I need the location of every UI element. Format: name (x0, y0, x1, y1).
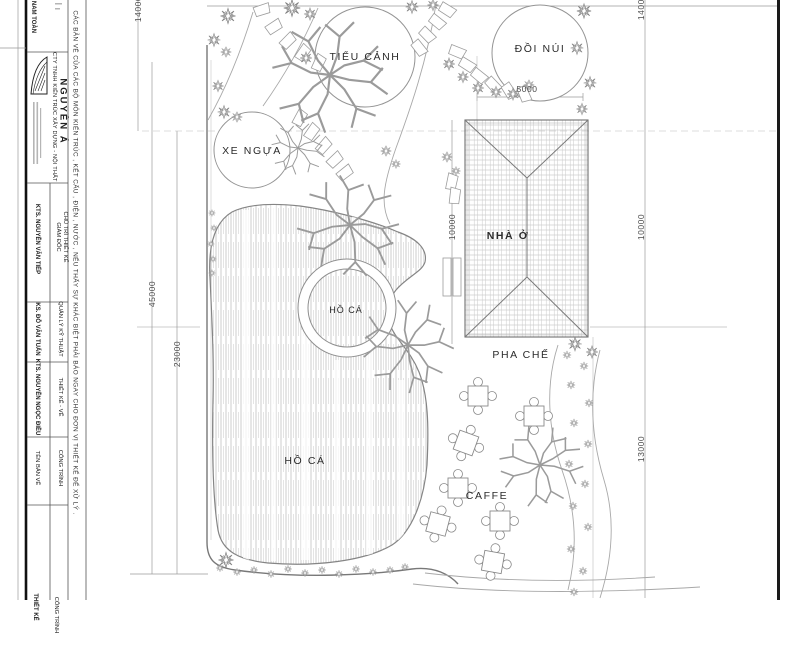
dim-14000-right: 14000 (636, 0, 646, 37)
company-name: CTY TNHH KIẾN TRÚC XÂY DỰNG - NỘI THẤT (51, 52, 57, 174)
role-chu-tri: CHỦ TRÌ THIẾT KẾ (62, 190, 68, 284)
sheet-border-right (777, 0, 780, 600)
dim-14000-left: 14000 (133, 0, 143, 39)
revision-note: CÁC BẢN VẼ CỦA CÁC BỘ MÔN KIẾN TRÚC , KẾ… (72, 3, 79, 523)
dim-10000-left: 10000 (447, 197, 457, 257)
field-ten-ban-ve: TÊN BẢN VẼ (34, 433, 40, 503)
area-label-doi-nui: ĐỒI NÚI (515, 43, 566, 55)
drawing-name-value: THIẾT KẾ (32, 567, 38, 647)
house-roof (465, 120, 588, 337)
dim-10000-right: 10000 (636, 197, 646, 257)
company-brand: NGUYÊN Á (58, 66, 69, 158)
project-value: CÔNG TRÌNH (53, 570, 59, 660)
dim-13000: 13000 (636, 419, 646, 479)
role-thiet-ke-ve: THIẾT KẾ - VẼ (57, 357, 63, 437)
area-label-xe-ngua: XE NGỰA (222, 145, 282, 157)
field-cong-trinh: CÔNG TRÌNH (57, 433, 63, 503)
area-label-nha-o: NHÀ Ở (487, 230, 530, 242)
site-plan-canvas (0, 0, 800, 600)
cafe-tables (415, 378, 552, 584)
staff-name-tiep: KTS. NGUYỄN VĂN TIẾP (34, 184, 40, 294)
area-label-caffe: CAFFE (466, 490, 508, 502)
company-logo-icon (31, 57, 47, 94)
dim-5000: 5000 (517, 84, 538, 94)
area-label-pha-che: PHA CHẾ (492, 349, 549, 361)
role-giam-doc: GIÁM ĐỐC (55, 190, 61, 284)
site-plan-sheet: TIỂU CẢNH ĐỒI NÚI XE NGỰA NHÀ Ở PHA CHẾ … (0, 0, 800, 600)
area-label-tieu-canh: TIỂU CẢNH (330, 51, 401, 63)
area-label-ho-ca-big: HỒ CÁ (284, 455, 325, 467)
investor-name: NAM TOÀN (30, 0, 36, 47)
dim-45000: 45000 (147, 264, 157, 324)
area-label-ho-ca-small: HỒ CÁ (329, 305, 363, 315)
fish-pond (210, 204, 428, 564)
dim-23000: 23000 (172, 324, 182, 384)
